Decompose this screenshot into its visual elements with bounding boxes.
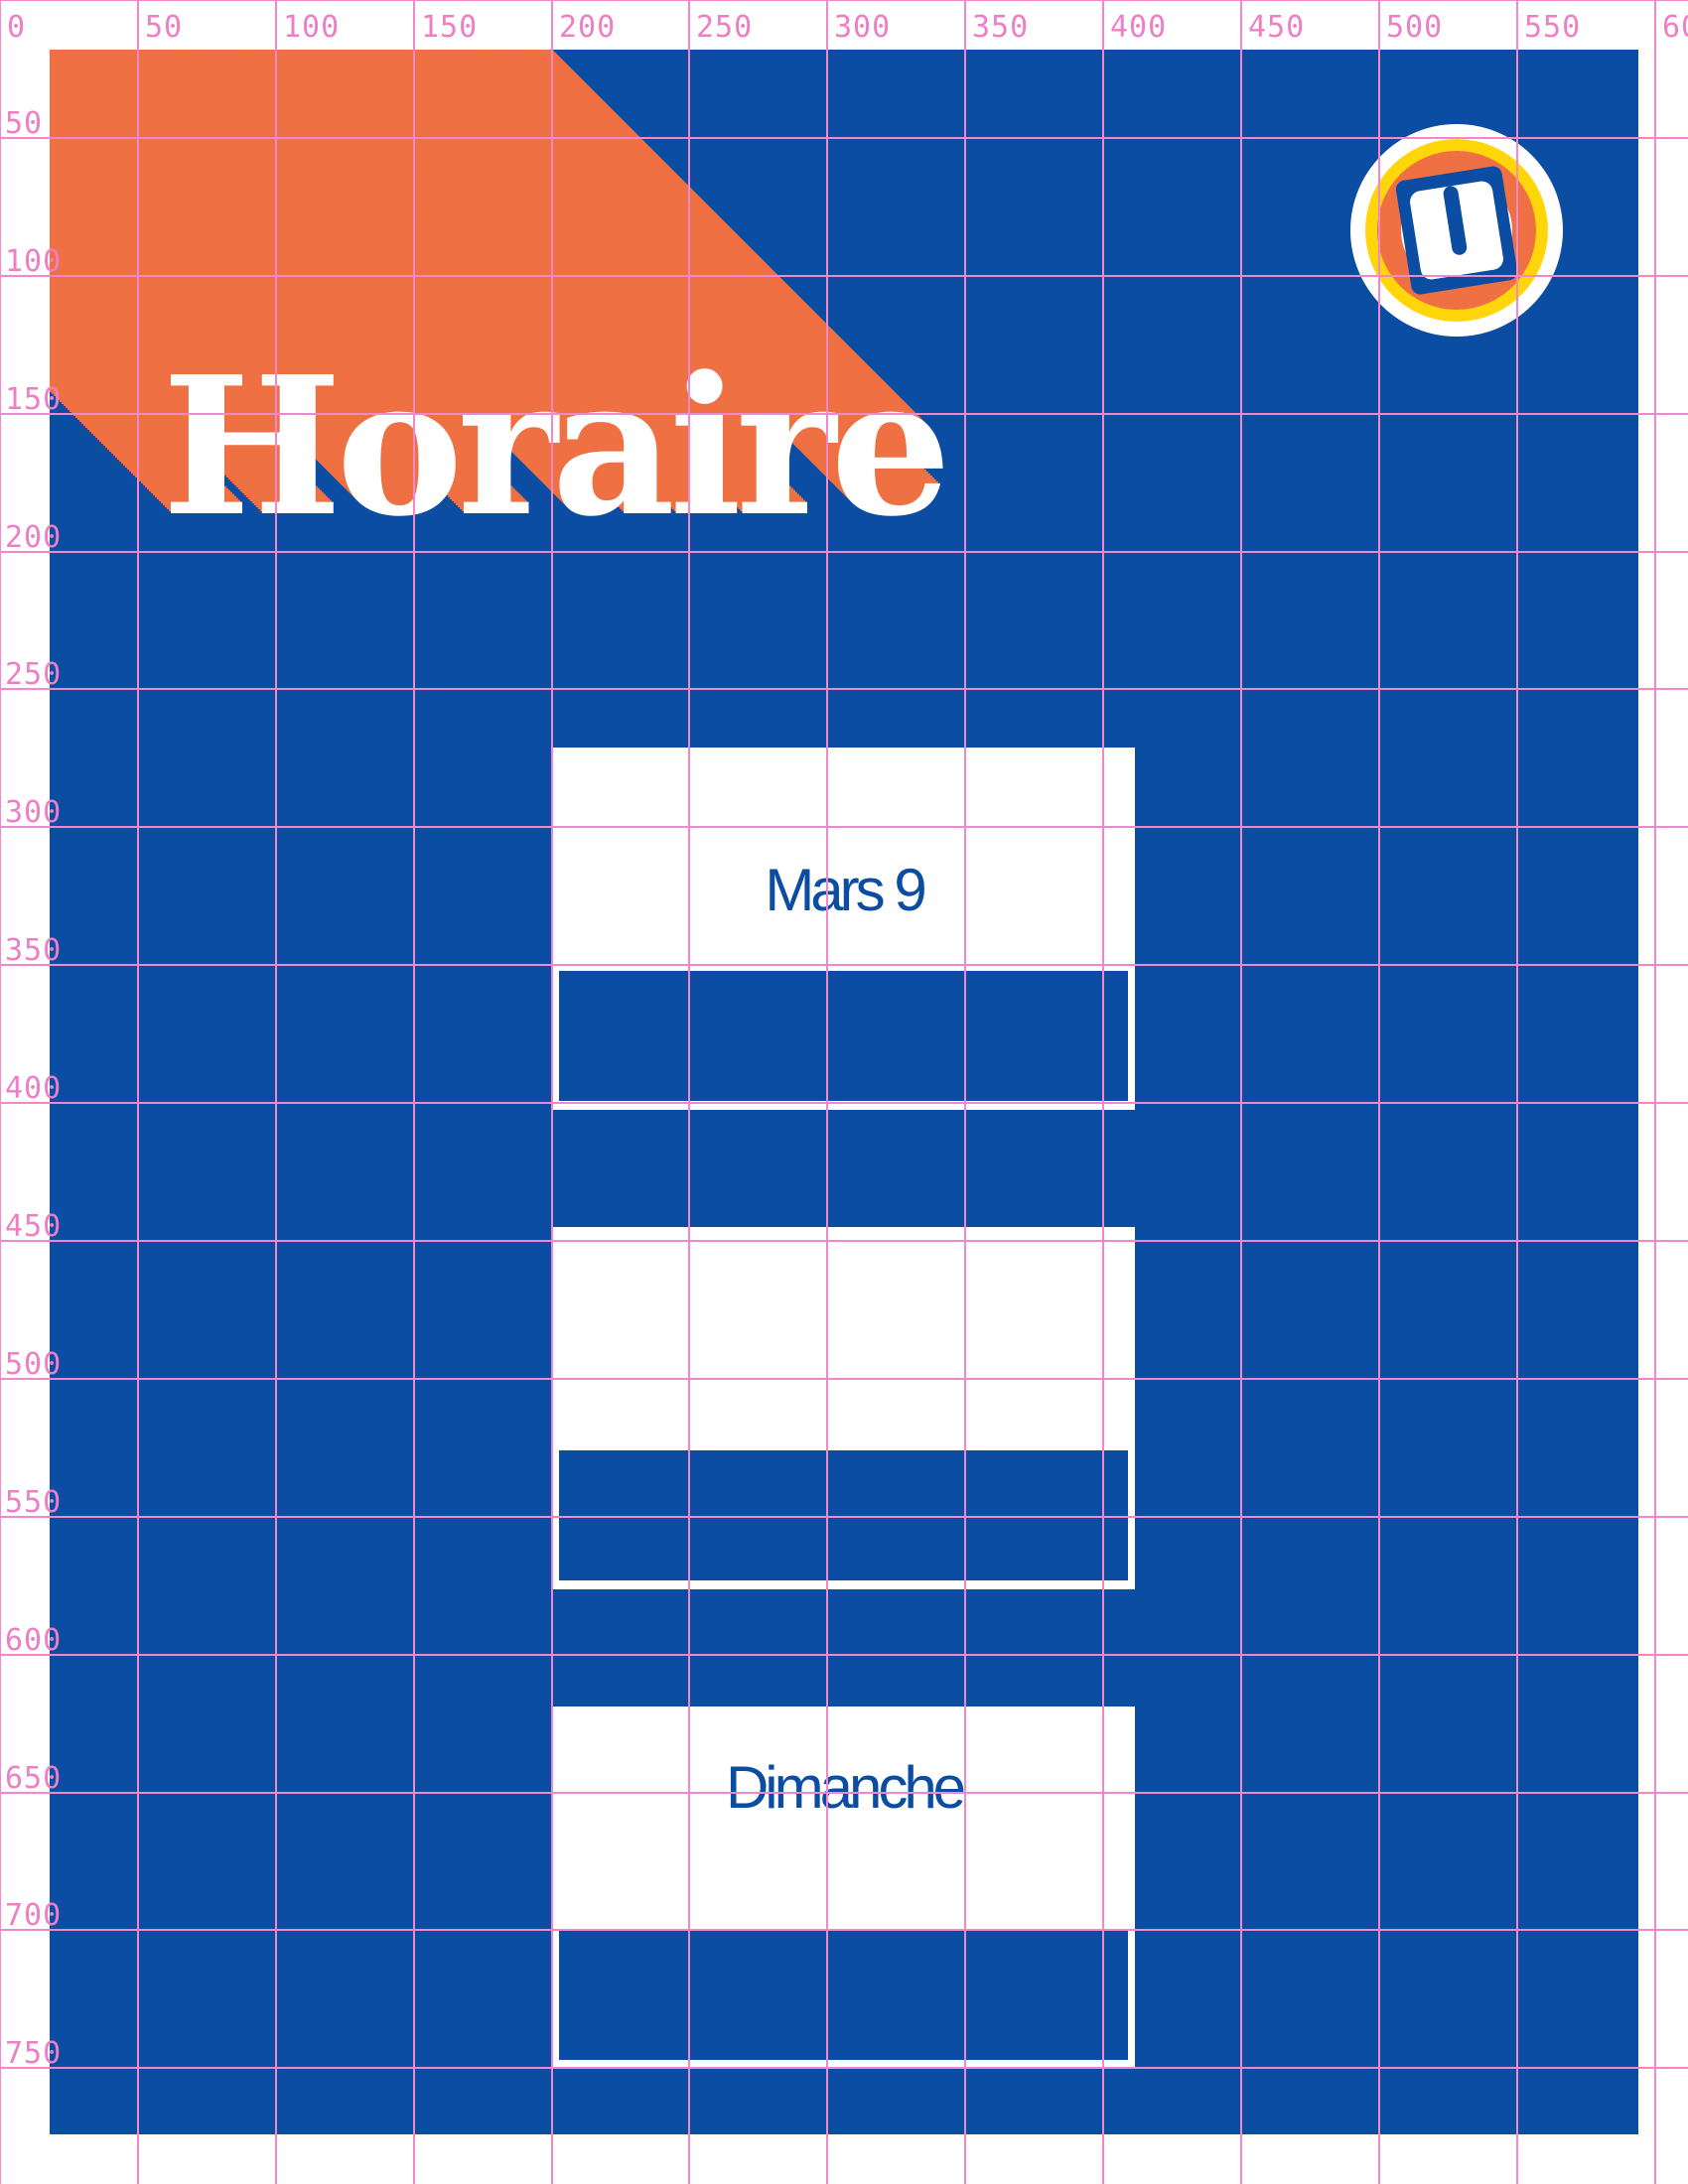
grid-label-x-0: 0 [7,13,26,43]
grid-label-x-500: 500 [1386,13,1443,43]
schedule-card-dimanche: Dimanche [553,1706,1135,2069]
poster: Horaire Mars 9 Dimanche [50,50,1638,2134]
grid-label-x-200: 200 [559,13,616,43]
card-band [559,1930,1128,2060]
grid-line-vertical [1654,0,1656,2184]
grid-label-x-50: 50 [145,13,183,43]
design-canvas: Horaire Mars 9 Dimanche [0,0,1688,2184]
grid-line-horizontal [0,0,1688,1]
schedule-card-mars-9: Mars 9 [553,748,1135,1110]
grid-label-x-350: 350 [972,13,1029,43]
grid-label-x-400: 400 [1110,13,1167,43]
card-title [553,1227,1135,1450]
card-title: Dimanche [553,1706,1135,1930]
card-band [559,971,1128,1101]
grid-label-x-550: 550 [1524,13,1581,43]
grid-label-x-250: 250 [696,13,753,43]
grid-label-x-150: 150 [421,13,478,43]
schedule-card-blank [553,1227,1135,1589]
card-band [559,1450,1128,1580]
grid-label-y-50: 50 [5,109,43,139]
logo-u-badge [1350,124,1563,337]
grid-label-x-300: 300 [834,13,891,43]
grid-label-x-450: 450 [1248,13,1305,43]
card-title: Mars 9 [553,748,1135,971]
grid-label-x-100: 100 [283,13,340,43]
logo-u-letter [1395,165,1519,295]
poster-title: Horaire [162,352,945,543]
grid-line-vertical [0,0,1,2184]
logo-u-icon [1350,124,1563,337]
grid-label-x-600: 600 [1662,13,1688,43]
